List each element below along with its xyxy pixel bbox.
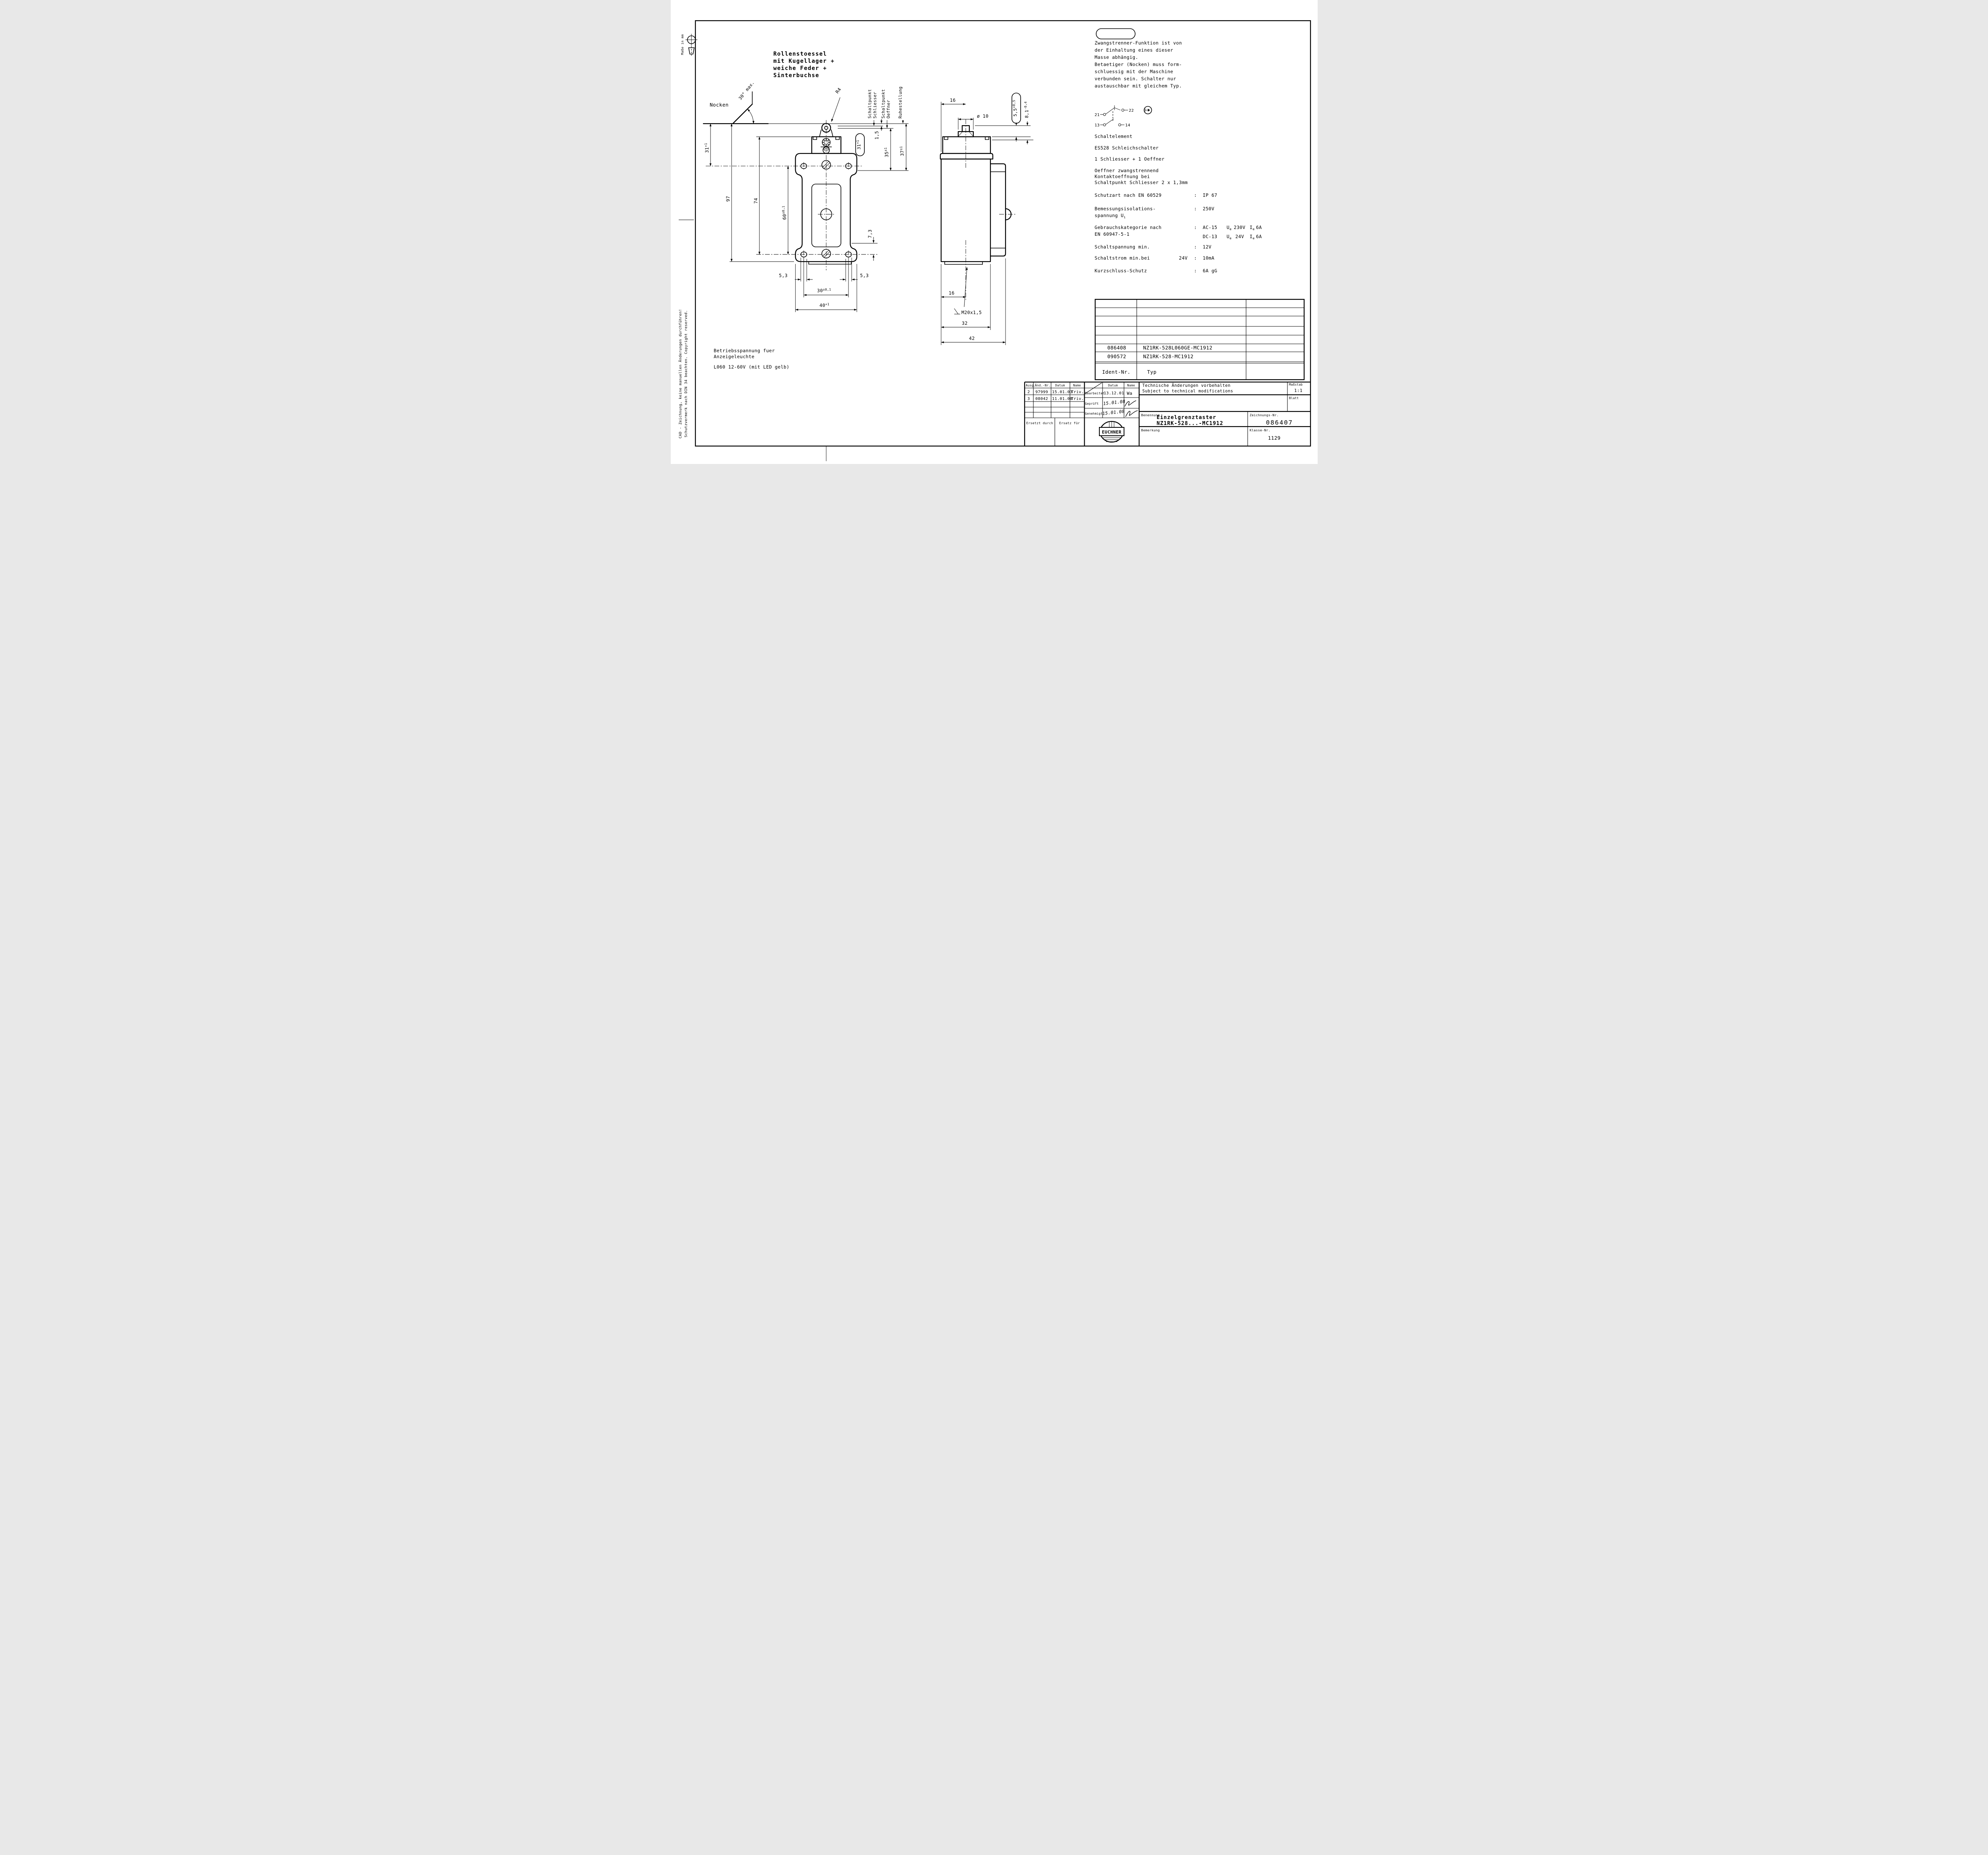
dim-30-label: 30±0,1 xyxy=(817,288,831,293)
rev-genehmigt-label: Genehmigt xyxy=(1085,412,1103,415)
dim-32-label: 32 xyxy=(962,320,968,326)
dim-53l-label: 5,3 xyxy=(779,273,788,278)
zw-line1: Zwangstrenner-Funktion ist von xyxy=(1095,40,1182,46)
rev-h-name: Name xyxy=(1073,384,1081,387)
ov-line3: L060 12-60V (mit LED gelb) xyxy=(714,364,789,370)
rev-bearbeitet-label: Bearbeitet xyxy=(1085,392,1105,395)
label-schaltpunkt-oeffner-2: Oeffner xyxy=(886,100,891,118)
operating-voltage-note: Betriebsspannung fuer Anzeigeleuchte L06… xyxy=(714,348,789,370)
rev-r2-name: Triv. xyxy=(1071,390,1084,394)
dim-73-label: 7,3 xyxy=(867,229,873,238)
nc-contact-arm xyxy=(1106,108,1114,114)
rev-geprueft-datum: 15.01.08 xyxy=(1103,399,1125,406)
actuator-note: Rollenstoessel mit Kugellager + weiche F… xyxy=(773,51,835,79)
schaltelement-title: Schaltelement xyxy=(1095,134,1132,139)
actuator-note-line1: Rollenstoessel xyxy=(773,51,827,57)
bemessung-label1: Bemessungsisolations- xyxy=(1095,206,1156,212)
terminal-21: 21 xyxy=(1095,113,1100,117)
bemessung-colon: : xyxy=(1194,206,1197,212)
ac-ue-symbol: Ue xyxy=(1227,225,1232,231)
blank-balloon xyxy=(1096,29,1135,39)
ident-table: 086408 NZ1RK-528L060GE-MC1912 090572 NZ1… xyxy=(1095,299,1304,380)
ac-ue-value: 230V xyxy=(1234,225,1245,230)
schutzart-label: Schutzart nach EN 60529 xyxy=(1095,192,1161,198)
tech-note-de: Technische Änderungen vorbehalten xyxy=(1142,383,1231,388)
schaltelement-contacts: 1 Schliesser + 1 Oeffner xyxy=(1095,156,1165,162)
ident-table-frame xyxy=(1095,299,1304,380)
schaltstrom-value: 10mA xyxy=(1203,255,1214,261)
zw-line3: Masse abhängig. xyxy=(1095,54,1138,60)
logo-verticals xyxy=(1109,421,1114,427)
cam-actuation-sketch: 30° max. Nocken xyxy=(703,80,909,124)
dimensions-side: 16 ø 10 5,5+0,5 8,1-0,4 16 M20x1,5 32 42 xyxy=(941,93,1033,345)
rev-r2-aend: 97999 xyxy=(1035,390,1048,394)
schutzart-value: IP 67 xyxy=(1203,192,1217,198)
dim-1-5-label: 1,5 xyxy=(874,131,879,140)
contact-13-circle xyxy=(1103,124,1106,126)
ident-table-rows xyxy=(1095,308,1304,363)
euchner-logo: EUCHNER xyxy=(1099,421,1124,442)
nc-contact-bar xyxy=(1114,105,1120,110)
schaltstrom-colon: : xyxy=(1194,255,1197,261)
zw-line5: schluessig mit der Maschine xyxy=(1095,69,1173,74)
nocken-label: Nocken xyxy=(710,102,729,108)
zw-line4: Betaetiger (Nocken) muss form- xyxy=(1095,62,1182,67)
positive-opening-arrowhead xyxy=(1148,109,1150,112)
drawing-canvas: Maße in mm CAD - Zeichnung, keine manuel… xyxy=(671,0,1318,464)
contact-14-circle xyxy=(1118,124,1121,126)
actuator-note-line3: weiche Feder + xyxy=(773,65,827,72)
side-flange xyxy=(940,153,993,159)
roller-radius-label: R4 xyxy=(834,87,842,95)
actuator-note-line4: Sinterbuchse xyxy=(773,72,819,79)
thread-angle-glyph xyxy=(954,309,960,314)
label-schaltpunkt-schliesser-2: Schliesser xyxy=(873,92,878,118)
zwangstrenner-note: Zwangstrenner-Funktion ist von der Einha… xyxy=(1095,29,1182,89)
schaltstrom-label: Schaltstrom min.bei xyxy=(1095,255,1150,261)
kurzschluss-colon: : xyxy=(1194,268,1197,274)
balloon-55-label: 5,5+0,5 xyxy=(1012,100,1018,116)
dc-ue-value: 24V xyxy=(1235,234,1244,239)
benennung-value-1: Einzelgrenztaster xyxy=(1157,415,1216,421)
terminal-14: 14 xyxy=(1125,123,1130,128)
gebrauch-label1: Gebrauchskategorie nach xyxy=(1095,225,1161,230)
zeichnung-label: Zeichnungs-Nr. xyxy=(1250,413,1279,417)
dim-42-label: 42 xyxy=(969,336,975,341)
schaltspannung-label: Schaltspannung min. xyxy=(1095,244,1150,250)
side-head-block xyxy=(943,137,990,153)
ext-lines-travel xyxy=(975,126,1033,140)
rev-bearbeitet-datum: 13.12.01 xyxy=(1104,391,1124,396)
dim-16-top-label: 16 xyxy=(950,97,956,103)
ov-line2: Anzeigeleuchte xyxy=(714,354,755,359)
balloon-31-label: 31+1 xyxy=(856,140,862,149)
dc-category: DC-13 xyxy=(1203,234,1217,239)
benennung-value-2: NZ1RK-528...-MC1912 xyxy=(1157,421,1223,427)
dim-35-label: 35±1 xyxy=(884,147,889,157)
contact-schematic: 21 22 13 14 xyxy=(1095,105,1152,128)
schaltelement-note2: Kontaktoeffnung bei xyxy=(1095,174,1150,179)
rev-genehmigt-datum: 15.01.08 xyxy=(1102,409,1124,416)
dim-dia10-label: ø 10 xyxy=(977,113,988,119)
ident-row1-typ: NZ1RK-528L060GE-MC1912 xyxy=(1143,345,1212,351)
ident-row2-id: 090572 xyxy=(1107,353,1126,359)
dim-97-label: 97 xyxy=(725,196,731,202)
thread-leader xyxy=(964,267,967,307)
bemessung-label2: spannung Ui xyxy=(1095,213,1126,219)
zw-line6: verbunden sein. Schalter nur xyxy=(1095,76,1176,81)
guide-dot-left xyxy=(824,148,825,149)
margin-annotations: Maße in mm CAD - Zeichnung, keine manuel… xyxy=(678,34,697,439)
angle-label: 30° max. xyxy=(738,80,755,101)
side-cover xyxy=(990,164,1006,256)
dim-37-label: 37±1 xyxy=(899,146,905,156)
bemessung-value: 250V xyxy=(1203,206,1214,212)
ac-category: AC-15 xyxy=(1203,225,1217,230)
kurzschluss-label: Kurzschluss-Schutz xyxy=(1095,268,1147,274)
dim-81-label: 8,1-0,4 xyxy=(1024,101,1029,118)
dim-40-label: 40+1 xyxy=(819,303,829,308)
ac-ie-value: 6A xyxy=(1256,225,1262,230)
rev-h-datum2: Datum xyxy=(1108,384,1118,387)
terminal-13: 13 xyxy=(1095,123,1100,128)
geprueft-signature xyxy=(1125,401,1136,406)
label-schaltpunkt-oeffner-1: Schaltpunkt xyxy=(881,89,886,118)
dim-31-label: 31+1 xyxy=(704,143,710,153)
schaltelement-section: 21 22 13 14 Schaltelement ES528 Schleich… xyxy=(1095,105,1188,185)
blatt-label: Blatt xyxy=(1289,396,1299,400)
schutzart-colon: : xyxy=(1194,192,1197,198)
logo-lines xyxy=(1102,436,1122,442)
schaltspannung-value: 12V xyxy=(1203,244,1211,250)
dimensions-front: 31+1 97 74 60±0,1 1,5 35±1 37±1 31+1 5,3… xyxy=(704,119,909,312)
rev-h-ausg: Ausg. xyxy=(1026,384,1036,387)
ident-header-typ: Typ xyxy=(1147,369,1157,375)
ext-lines-bottom xyxy=(941,258,1006,345)
cad-note-line1: CAD - Zeichnung, keine manuellen Änderun… xyxy=(678,309,683,439)
masstab-label: Maßstab xyxy=(1289,383,1303,386)
side-body xyxy=(941,159,990,262)
radius-leader xyxy=(831,97,840,122)
cover-screw-top-slot xyxy=(823,161,830,169)
ident-header-id: Ident-Nr. xyxy=(1102,369,1130,375)
rev-ersatz: Ersatz für xyxy=(1059,421,1079,425)
rev-r3-ausg: 3 xyxy=(1027,397,1030,401)
rev-geprueft-label: Geprüft xyxy=(1085,402,1099,406)
cam-ramp-line xyxy=(733,104,752,124)
genehmigt-signature xyxy=(1126,411,1138,417)
zw-line2: der Einhaltung eines dieser xyxy=(1095,47,1173,53)
rev-bearbeitet-name: Wa xyxy=(1127,391,1132,396)
rev-h-aend: Änd.-Nr. xyxy=(1035,384,1050,387)
no-contact-arm xyxy=(1106,119,1114,124)
rev-r2-ausg: 2 xyxy=(1027,390,1030,394)
switch-point-labels: Schaltpunkt Schliesser Schaltpunkt Oeffn… xyxy=(868,86,903,128)
schaltstrom-cond: 24V xyxy=(1179,255,1188,261)
drawing-sheet: Maße in mm CAD - Zeichnung, keine manuel… xyxy=(671,0,1318,464)
schaltspannung-colon: : xyxy=(1194,244,1197,250)
ident-table-cols xyxy=(1137,299,1246,380)
units-note: Maße in mm xyxy=(681,34,684,55)
label-ruhestellung: Ruhestellung xyxy=(898,86,903,118)
rev-r3-datum: 11.01.08 xyxy=(1052,397,1072,401)
rev-r3-name: Triv. xyxy=(1071,397,1084,401)
label-schaltpunkt-schliesser-1: Schaltpunkt xyxy=(868,89,872,118)
angle-arc xyxy=(747,109,753,124)
contact-22-circle xyxy=(1122,109,1124,111)
dim-53r-label: 5,3 xyxy=(860,273,869,278)
dc-ie-symbol: Ie xyxy=(1250,234,1255,240)
contact-21-circle xyxy=(1103,113,1106,116)
dc-ie-value: 6A xyxy=(1256,234,1262,239)
klasse-value: 1129 xyxy=(1268,435,1281,441)
rev-ersetzt: Ersetzt durch xyxy=(1026,421,1053,425)
rev-h-name2: Name xyxy=(1127,384,1135,387)
schaltelement-note1: Oeffner zwangstrennend xyxy=(1095,168,1159,173)
ident-row1-id: 086408 xyxy=(1107,345,1126,351)
rev-h-datum: Datum xyxy=(1055,384,1065,387)
rev-r2-datum: 15.01.03 xyxy=(1052,390,1072,394)
zw-line7: austauschbar mit gleichem Typ. xyxy=(1095,83,1182,89)
side-cover-lines xyxy=(990,172,1006,248)
ov-line1: Betriebsspannung fuer xyxy=(714,348,775,353)
schaltelement-type: ES528 Schleichschalter xyxy=(1095,145,1159,151)
zeichnung-value: 086407 xyxy=(1266,419,1293,426)
dim-60-label: 60±0,1 xyxy=(782,206,787,220)
bemerkung-label: Bemerkung xyxy=(1141,429,1160,432)
side-view xyxy=(940,119,1017,300)
gebrauch-colon: : xyxy=(1194,225,1197,230)
klasse-label: Klasse-Nr. xyxy=(1250,429,1270,432)
masstab-value: 1:1 xyxy=(1294,388,1303,393)
logo-text: EUCHNER xyxy=(1102,430,1121,435)
dim-74-label: 74 xyxy=(753,198,759,204)
rev-r3-aend: 08042 xyxy=(1035,397,1048,401)
cover-screw-bottom-slot xyxy=(823,250,830,258)
actuator-note-line2: mit Kugellager + xyxy=(773,58,835,64)
title-block: Technische Änderungen vorbehalten Subjec… xyxy=(1139,382,1311,446)
ac-ie-symbol: Ie xyxy=(1250,225,1255,231)
dc-ue-symbol: Ue xyxy=(1227,234,1232,240)
cad-note-line2: Schutzvermerk nach DIN 34 beachten. Copy… xyxy=(684,310,688,437)
thread-label: M20x1,5 xyxy=(961,310,982,315)
terminal-22: 22 xyxy=(1129,109,1134,113)
gebrauch-label2: EN 60947-5-1 xyxy=(1095,231,1130,237)
ident-row2-typ: NZ1RK-528-MC1912 xyxy=(1143,353,1194,359)
guide-dot-right xyxy=(827,148,829,149)
specs-section: Schutzart nach EN 60529 : IP 67 Bemessun… xyxy=(1095,192,1262,274)
dim-16-bottom-label: 16 xyxy=(949,290,955,296)
tech-note-en: Subject to technical modifications xyxy=(1142,389,1233,394)
schaltelement-note3: Schaltpunkt Schliesser 2 x 1,3mm xyxy=(1095,180,1188,185)
kurzschluss-value: 6A gG xyxy=(1203,268,1217,274)
